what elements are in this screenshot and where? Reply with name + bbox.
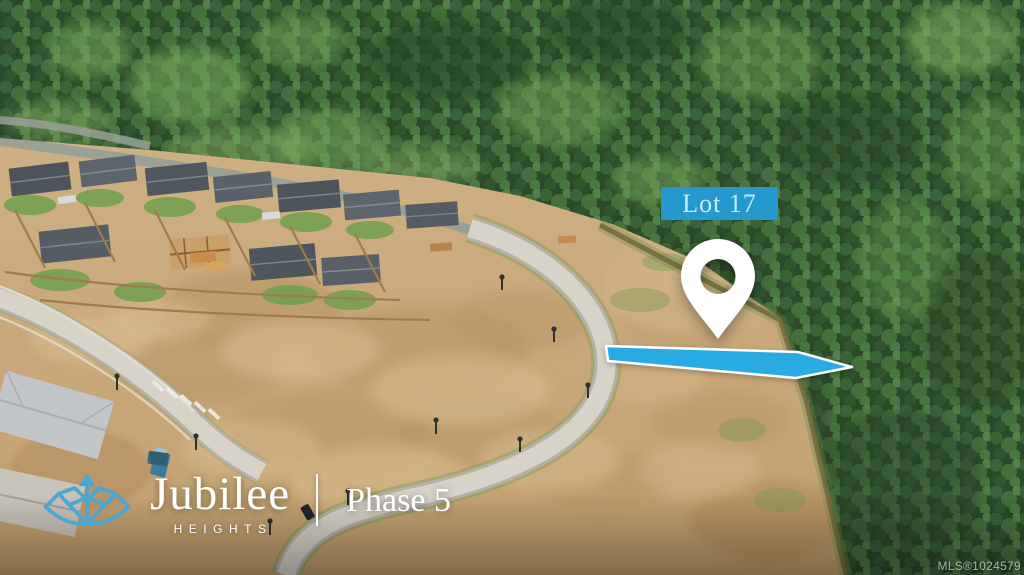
mls-number: MLS®1024579 <box>937 559 1021 573</box>
lot-arrow-icon <box>595 338 860 390</box>
dumpster <box>147 451 169 467</box>
brand-name: Jubilee <box>150 471 290 518</box>
map-pin-icon <box>678 236 758 342</box>
jubilee-emblem-icon <box>40 468 134 538</box>
listing-photo-frame: Lot 17 Jubilee HEIGHTS Phase <box>0 0 1024 575</box>
map-pin-shape <box>681 239 755 339</box>
brand-divider <box>316 474 318 526</box>
brand-bar: Jubilee HEIGHTS Phase 5 <box>40 468 451 538</box>
brand-name-block: Jubilee HEIGHTS <box>150 471 290 536</box>
phase-label: Phase 5 <box>346 482 451 524</box>
lot-arrow-shape <box>606 346 852 378</box>
brand-tagline: HEIGHTS <box>168 522 273 536</box>
lot-label: Lot 17 <box>661 187 778 220</box>
emblem-arrowhead <box>79 473 96 486</box>
